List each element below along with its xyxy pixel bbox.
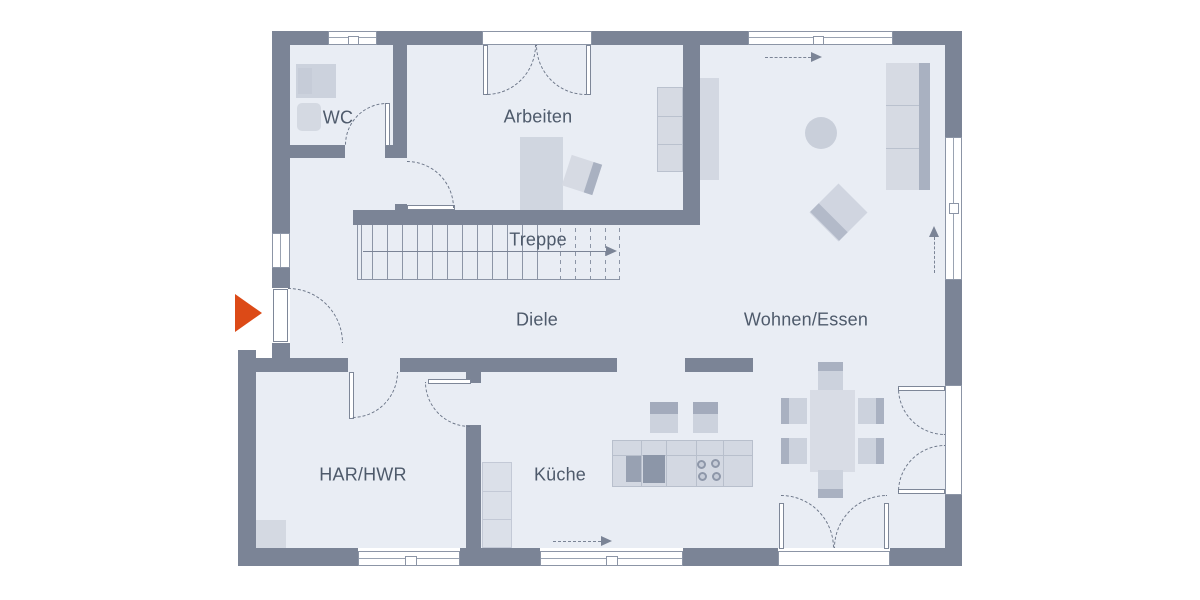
coffee-table [805, 117, 837, 149]
kitchen-sink [626, 456, 641, 482]
window-shutter-box [405, 556, 417, 566]
wc-vanity [296, 64, 336, 98]
wall-left-upper [272, 45, 290, 233]
wall-wc-bottom-cap [385, 145, 407, 158]
room-label-treppe: Treppe [509, 230, 567, 251]
dining-chair-right-2 [858, 438, 884, 464]
arrow-line [553, 541, 601, 542]
counter-divider [723, 441, 724, 486]
window-shutter-box [949, 203, 959, 214]
arrow-tip [811, 52, 822, 62]
wall-left-upper [272, 343, 290, 358]
room-label-kueche: Küche [534, 465, 586, 486]
wall-bottom [890, 548, 962, 566]
wall-har-kueche [466, 425, 481, 548]
pantry-shelf [482, 462, 512, 548]
chair-back [876, 438, 884, 464]
tall-unit-top [693, 402, 718, 414]
bookshelf-divider [658, 144, 682, 145]
chair-back [876, 398, 884, 424]
wall-har-top [238, 358, 348, 372]
wall-left-upper [272, 268, 290, 288]
chair-back [818, 362, 843, 371]
entrance-door-leaf [273, 289, 288, 342]
cooktop-burner [697, 460, 706, 469]
stair-walkline [363, 251, 606, 252]
bookshelf-divider [658, 116, 682, 117]
window-entrance-side [272, 233, 290, 268]
wall-bottom [683, 548, 778, 566]
stair-direction-arrow [606, 246, 617, 256]
wall-wc-arbeiten [393, 45, 407, 158]
window-wohnen-top [748, 31, 893, 45]
dining-table [810, 390, 855, 472]
dining-chair-left-2 [781, 438, 807, 464]
wall-arbeiten-wohnen [683, 45, 700, 225]
kitchen-tall-unit-2 [693, 402, 718, 433]
window-wc [328, 31, 377, 45]
kitchen-tall-unit-1 [650, 402, 678, 433]
tall-unit-top [650, 402, 678, 414]
door-opening-arbeiten-french [482, 31, 592, 45]
cooktop-burner [711, 459, 720, 468]
wall-wc-bottom [290, 145, 345, 158]
cooktop-burner [712, 472, 721, 481]
wall-diele-kueche [400, 358, 617, 372]
pantry-divider [483, 491, 511, 492]
wall-left-lower [238, 350, 256, 566]
floor-plan: WC Arbeiten Treppe Diele Wohnen/Essen HA… [0, 0, 1200, 600]
arrow-line [765, 57, 811, 58]
wall-right [945, 31, 962, 137]
cooktop-burner [698, 472, 707, 481]
chair-back [818, 489, 843, 498]
sofa-cushion-divider [886, 148, 919, 149]
arrow-line [934, 237, 935, 273]
sofa-right-back [919, 63, 930, 190]
window-frame-line [280, 234, 281, 267]
sofa-cushion-divider [886, 105, 919, 106]
room-label-diele: Diele [516, 310, 558, 331]
wall-bottom [238, 548, 358, 566]
counter-divider [666, 441, 667, 486]
entrance-arrow [235, 294, 262, 332]
sofa-right [886, 63, 919, 190]
bookshelf [657, 87, 683, 172]
door-opening-garden-bottom [778, 551, 890, 566]
window-direction-arrow-bottom [553, 536, 613, 546]
dining-chair-left-1 [781, 398, 807, 424]
dining-chair-top [818, 362, 843, 390]
wc-basin [298, 68, 312, 94]
window-direction-arrow-top [765, 52, 823, 62]
window-har [358, 551, 460, 566]
window-kueche [540, 551, 683, 566]
arrow-tip [601, 536, 612, 546]
desk [520, 137, 563, 215]
kitchen-dishwasher [643, 455, 665, 483]
door-opening-terrace-right [945, 385, 962, 495]
chair-back [781, 438, 789, 464]
sofa-left [700, 78, 719, 180]
window-direction-arrow-right [929, 226, 939, 274]
chair-back [781, 398, 789, 424]
arrow-tip [929, 226, 939, 237]
room-label-har-hwr: HAR/HWR [319, 465, 406, 486]
wall-top [377, 31, 482, 45]
window-shutter-box [606, 556, 618, 566]
wall-top [272, 31, 328, 45]
wall-top [592, 31, 748, 45]
staircase [357, 225, 620, 280]
window-wohnen-right [945, 137, 962, 280]
window-shutter-box [813, 36, 824, 45]
room-label-wohnen-essen: Wohnen/Essen [744, 310, 868, 331]
french-door-leaf-right [586, 45, 591, 95]
room-label-arbeiten: Arbeiten [504, 107, 573, 128]
wall-right [945, 280, 962, 385]
room-label-wc: WC [323, 108, 353, 129]
pantry-divider [483, 519, 511, 520]
wall-stair [353, 210, 700, 225]
wc-toilet [297, 103, 321, 131]
window-shutter-box [348, 36, 359, 45]
counter-divider [641, 441, 642, 486]
dining-chair-right-1 [858, 398, 884, 424]
wall-kueche-stub [685, 358, 753, 372]
dining-chair-bottom [818, 470, 843, 498]
wall-bottom [460, 548, 540, 566]
stair-start-line [361, 225, 362, 280]
